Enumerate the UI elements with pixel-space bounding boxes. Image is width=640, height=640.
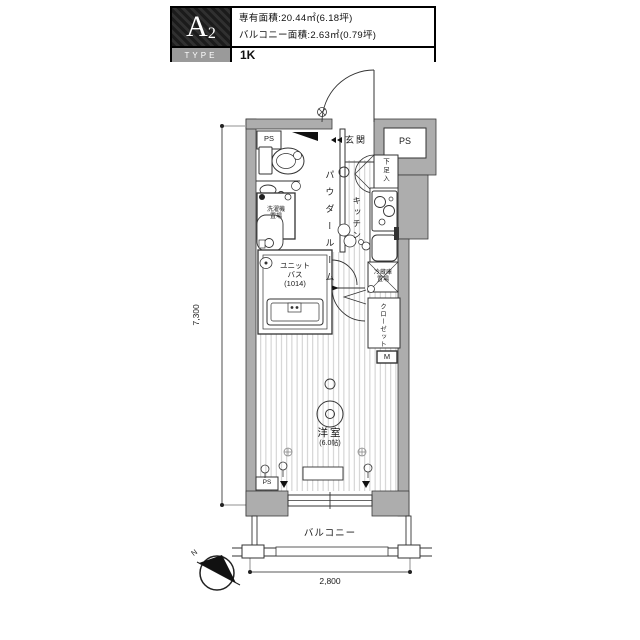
label-dim-horizontal: 2,800	[305, 577, 355, 587]
compass-icon	[197, 555, 240, 590]
floorplan-page: A2 専有面積:20.44㎡(6.18坪) バルコニー面積:2.63㎡(0.79…	[0, 0, 640, 640]
fixture-circle	[338, 224, 350, 236]
label-ps-niche: PS	[384, 136, 426, 146]
heater-panel-icon	[394, 227, 399, 240]
label-meter: M	[377, 353, 397, 362]
label-dim-vertical: 7,300	[192, 304, 202, 325]
label-main-room-size: (6.0帖)	[300, 440, 360, 448]
label-shoe-box: 下足入	[381, 158, 388, 184]
floorplan-drawing	[0, 0, 640, 640]
label-ps-bottom-left: PS	[256, 479, 278, 486]
label-unit-bath: ユニット バス (1014)	[262, 261, 328, 288]
toilet-icon	[259, 147, 304, 174]
label-kitchen: キッチン	[351, 196, 361, 242]
balcony-window	[288, 492, 372, 509]
label-ps-top-left: PS	[257, 135, 281, 144]
label-entrance: 玄関	[345, 135, 367, 145]
label-balcony: バルコニー	[295, 529, 365, 540]
entrance-door	[318, 70, 375, 122]
kitchen-sink-icon	[372, 235, 397, 261]
label-main-room: 洋室	[300, 427, 360, 439]
label-closet: クローゼット	[378, 303, 385, 348]
shelf-mark	[292, 132, 318, 141]
label-laundry: 洗濯機 置場	[257, 207, 295, 221]
label-fridge: 冷蔵庫 置場	[368, 270, 398, 284]
counter-box	[303, 467, 343, 480]
